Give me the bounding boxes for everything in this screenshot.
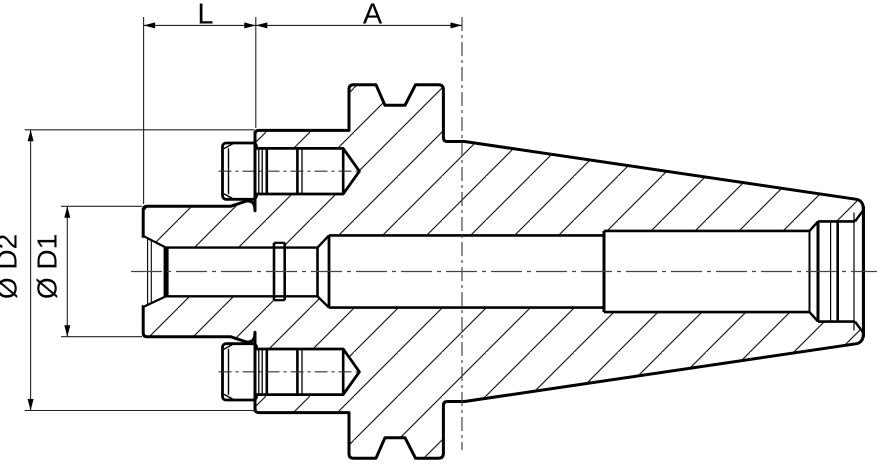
svg-text:Ø D1: Ø D1 (32, 234, 63, 299)
svg-text:A: A (363, 0, 383, 31)
svg-text:L: L (197, 0, 213, 31)
svg-text:Ø D2: Ø D2 (0, 234, 23, 299)
